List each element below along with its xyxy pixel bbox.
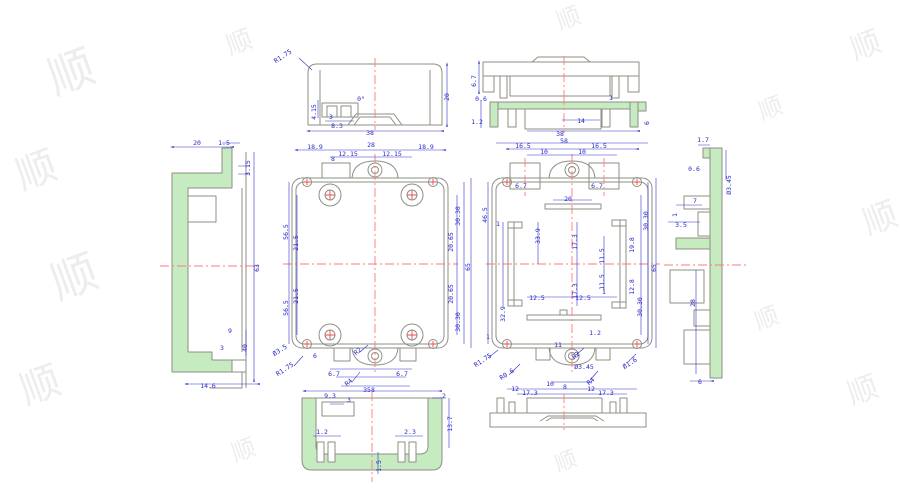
dimension-label: 65 <box>464 263 472 271</box>
dimension-label: 46.5 <box>481 207 489 223</box>
dimension-label: 12.15 <box>382 150 402 158</box>
dimension-label: 6 <box>643 121 651 125</box>
dimension-label: 1.2 <box>316 428 328 436</box>
watermark-glyph: 顺 <box>14 357 67 414</box>
dimension-label: 16.5 <box>591 142 607 150</box>
dimension-label: 3 <box>347 396 351 404</box>
dimension-label: Ø3.45 <box>725 175 733 195</box>
dimension-label: 16.5 <box>515 142 531 150</box>
dimension-label: 28 <box>367 141 375 149</box>
view-side-section-right: 1.70.6Ø3.45713.5286 <box>664 136 746 386</box>
dimension-label: 3 <box>220 344 224 352</box>
dimension-label: Ø1.6 <box>621 356 639 371</box>
dimension-label: 20 <box>193 139 201 147</box>
watermark-glyph: 顺 <box>43 244 105 310</box>
dimension-label: 1 <box>671 213 679 217</box>
dimension-label: 8 <box>563 383 567 391</box>
dimension-label: 12.5 <box>529 294 545 302</box>
dimension-label: 40 <box>241 344 249 352</box>
dimension-label: 1.5 <box>375 460 383 472</box>
dimension-label: 20.65 <box>447 284 455 304</box>
drawing-canvas: 顺顺顺顺顺顺顺顺顺顺顺顺顺 201.53.1563940314.6 R1.750… <box>0 0 900 500</box>
dimension-label: 17.3 <box>571 234 579 250</box>
view-end-top: R1.750°4.1538.32038 <box>273 48 451 137</box>
watermark-glyph: 顺 <box>750 301 782 336</box>
view-lid-bottom-side <box>490 394 646 430</box>
dimension-label: 3.15 <box>244 160 252 176</box>
dimension-label: 28 <box>689 299 697 307</box>
dimension-label: R0.6 <box>498 367 516 382</box>
dimension-label: Ø3.5 <box>271 343 289 358</box>
dimension-label: 58 <box>560 137 568 145</box>
dimension-label: 21.5 <box>292 288 300 304</box>
dimension-label: 1.7 <box>697 136 709 144</box>
dimension-label: 1.5 <box>218 139 230 147</box>
view-lid-side: 6.70.61.2161438 <box>470 56 651 138</box>
dimension-label: 1 <box>609 94 613 102</box>
dimension-label: 10 <box>540 148 548 156</box>
dimension-label: R1.75 <box>473 352 494 369</box>
dimension-label: R1.75 <box>275 361 296 378</box>
dimension-label: 7 <box>693 197 697 205</box>
watermark-glyph: 顺 <box>40 39 102 105</box>
dimension-label: R4 <box>343 377 354 388</box>
dimension-label: 63 <box>253 264 261 272</box>
dimension-label: 1 <box>602 288 606 296</box>
dimension-label: 11 <box>554 341 562 349</box>
watermark-glyph: 顺 <box>227 433 259 468</box>
dimension-label: 3.5 <box>675 221 687 229</box>
dimension-label: 14 <box>577 117 585 125</box>
view-bottom-section: 359.33213.71.22.31.5 <box>302 386 454 482</box>
dimension-label: 56.5 <box>282 300 290 316</box>
dimension-label: 6 <box>313 352 317 360</box>
view-main-inside: 16.510581016.56.76.746.5133.917.311.5201… <box>473 137 660 397</box>
dimension-label: 2 <box>442 392 446 400</box>
dimension-label: 10 <box>546 380 554 388</box>
watermark-glyph: 顺 <box>843 369 883 412</box>
dimension-label: 30.30 <box>642 211 650 231</box>
dimension-label: 30.30 <box>454 206 462 226</box>
dimension-label: 6.7 <box>591 182 603 190</box>
dimension-label: 12.8 <box>628 279 636 295</box>
inner-ribs <box>508 204 626 320</box>
dimension-label: 30.30 <box>636 297 644 317</box>
dimension-label: 1 <box>486 333 490 341</box>
dimension-label: 14.6 <box>200 382 216 390</box>
dimension-label: 6.7 <box>515 182 527 190</box>
cad-drawing: 顺顺顺顺顺顺顺顺顺顺顺顺顺 201.53.1563940314.6 R1.750… <box>0 0 900 500</box>
dimension-label: 3 <box>329 113 333 121</box>
dimension-label: 6.7 <box>470 75 478 87</box>
view-main-top: 18.912.152812.1518.9856.521.521.556.530.… <box>271 141 472 394</box>
dimension-label: 38 <box>366 129 374 137</box>
dimension-label: 8.3 <box>331 122 343 130</box>
dimension-label: 17.3 <box>522 389 538 397</box>
dimension-label: 10 <box>578 148 586 156</box>
dimension-label: 1 <box>496 220 500 228</box>
watermark-glyph: 顺 <box>857 194 900 243</box>
dimension-label: 4.15 <box>310 104 318 120</box>
dimension-label: 0.6 <box>688 165 700 173</box>
dimension-label: 33.9 <box>534 228 542 244</box>
dimension-label: 18.9 <box>418 143 434 151</box>
dimension-label: 12 <box>511 385 519 393</box>
dimension-label: 21.5 <box>292 235 300 251</box>
dimension-label: 9.3 <box>324 392 336 400</box>
dimension-label: 6 <box>698 378 702 386</box>
dimension-label: 20.65 <box>447 232 455 252</box>
dimension-label: 56.5 <box>282 224 290 240</box>
dimension-label: 6.7 <box>396 370 408 378</box>
dimension-label: 0.6 <box>475 95 487 103</box>
dimension-label: 12 <box>587 385 595 393</box>
dimension-label: 0° <box>357 95 365 103</box>
watermark-glyph: 顺 <box>754 91 786 126</box>
dimension-label: R1.75 <box>273 48 294 65</box>
dimension-label: 18.9 <box>307 143 323 151</box>
dimension-label: 12.5 <box>575 294 591 302</box>
dimension-label: 20 <box>564 195 572 203</box>
watermark-glyph: 顺 <box>222 24 257 61</box>
dimension-label: 17.3 <box>598 389 614 397</box>
view-side-section-left: 201.53.1563940314.6 <box>160 139 262 390</box>
dimension-label: 19.8 <box>628 237 636 253</box>
screw-bosses <box>319 184 423 346</box>
dimension-label: 6.7 <box>328 370 340 378</box>
watermark-glyph: 顺 <box>552 447 581 478</box>
dimension-label: 1.2 <box>589 329 601 337</box>
watermark-glyph: 顺 <box>10 142 63 199</box>
watermark-glyph: 顺 <box>846 24 886 67</box>
dimension-label: 9 <box>228 327 232 335</box>
dimension-label: 35 <box>363 386 371 394</box>
dimension-label: 13.7 <box>446 416 454 432</box>
watermark-glyph: 顺 <box>552 1 584 36</box>
dimension-label: 20 <box>443 93 451 101</box>
dimension-label: 2.3 <box>404 428 416 436</box>
dimension-label: 11.5 <box>598 248 606 264</box>
dimension-label: 8 <box>331 155 335 163</box>
dimension-label: 65 <box>650 264 658 272</box>
dimension-label: 12.15 <box>338 150 358 158</box>
dimension-label: Ø3.45 <box>574 363 594 371</box>
dimension-label: 32.9 <box>499 306 507 322</box>
dimension-label: 30.30 <box>454 312 462 332</box>
dimension-label: 1.2 <box>471 118 483 126</box>
